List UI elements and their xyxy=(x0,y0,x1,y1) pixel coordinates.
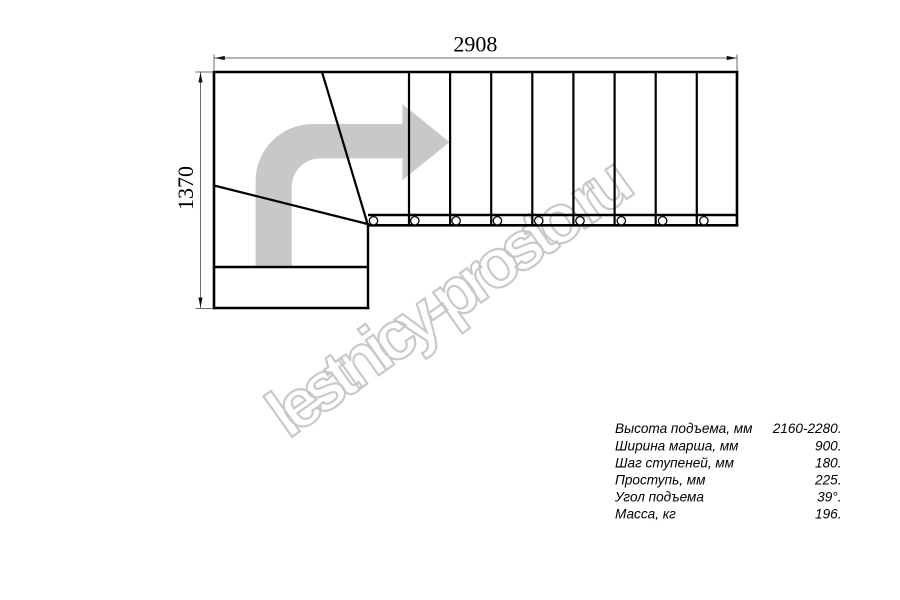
svg-text:Высота подъема, мм: Высота подъема, мм xyxy=(615,421,753,436)
svg-text:Шаг ступеней, мм: Шаг ступеней, мм xyxy=(615,455,735,470)
svg-text:225.: 225. xyxy=(814,473,841,488)
svg-text:Масса, кг: Масса, кг xyxy=(615,507,676,522)
svg-text:900.: 900. xyxy=(815,438,841,453)
svg-text:lestnicy-prosto.ru: lestnicy-prosto.ru xyxy=(252,143,643,452)
svg-text:196.: 196. xyxy=(815,507,841,522)
svg-text:2160-2280.: 2160-2280. xyxy=(772,421,842,436)
svg-text:180.: 180. xyxy=(815,455,841,470)
svg-text:Проступь, мм: Проступь, мм xyxy=(615,473,706,488)
svg-text:1370: 1370 xyxy=(173,166,198,210)
svg-text:Ширина марша, мм: Ширина марша, мм xyxy=(615,438,739,453)
svg-text:2908: 2908 xyxy=(453,32,497,57)
svg-text:39°.: 39°. xyxy=(817,490,841,505)
svg-text:Угол подъема: Угол подъема xyxy=(614,490,704,505)
